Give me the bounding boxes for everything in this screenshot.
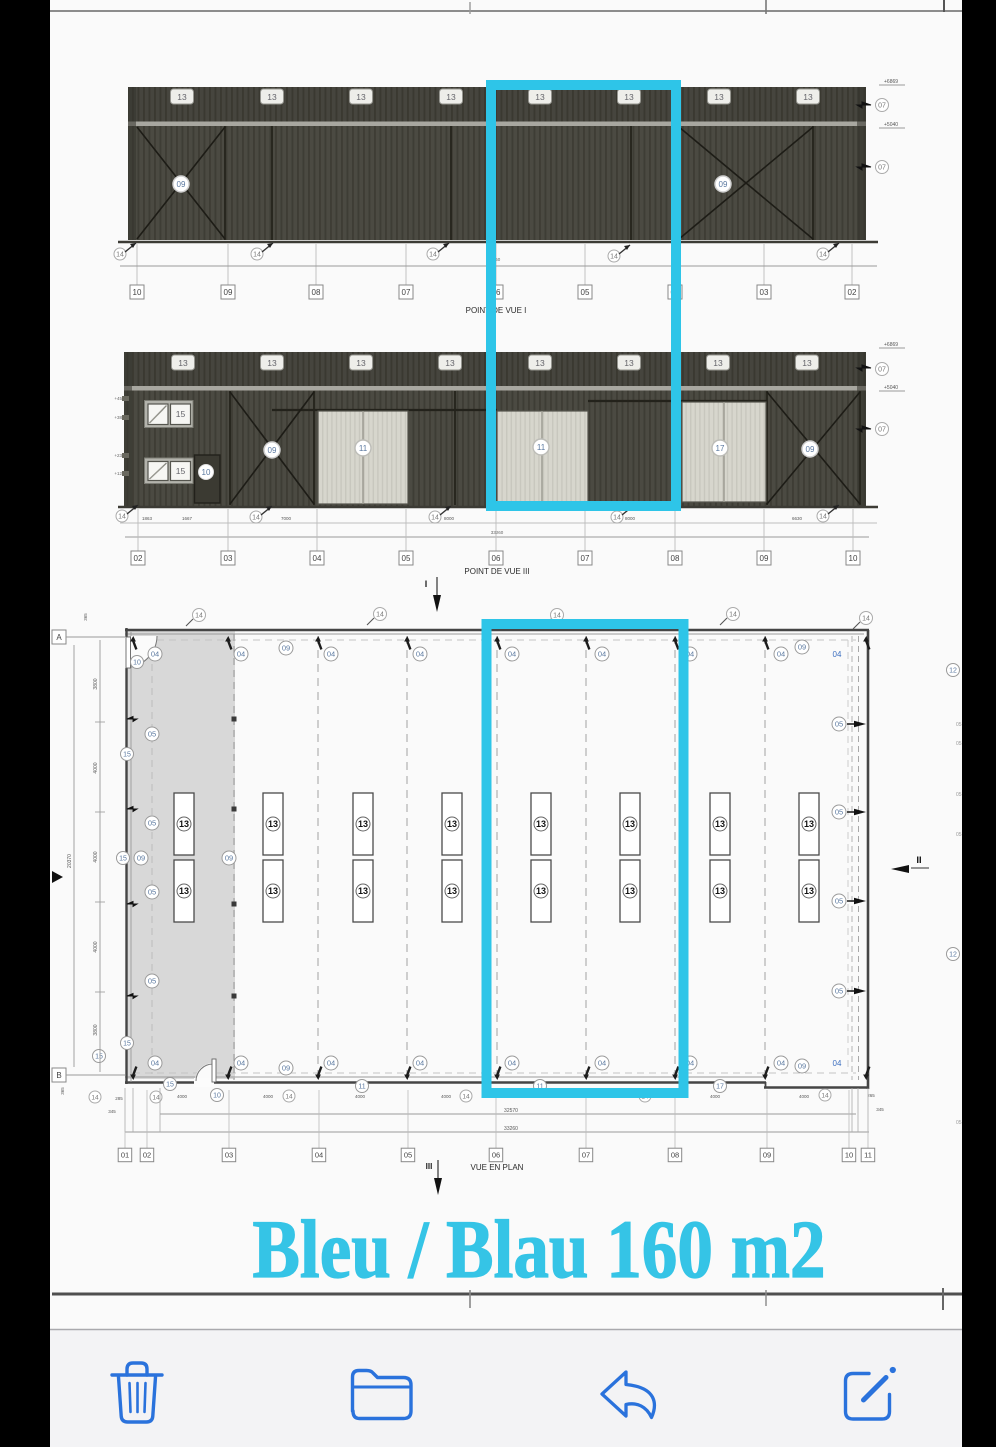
svg-text:04: 04 (833, 1059, 842, 1068)
svg-text:04: 04 (777, 650, 785, 659)
svg-text:14: 14 (821, 1092, 829, 1099)
svg-text:13: 13 (445, 358, 455, 368)
svg-text:09: 09 (177, 180, 186, 189)
svg-text:14: 14 (195, 613, 203, 620)
svg-text:14: 14 (819, 252, 827, 259)
svg-text:+12: +12 (114, 471, 122, 476)
svg-text:07: 07 (878, 427, 886, 434)
svg-text:15: 15 (123, 752, 131, 759)
svg-text:07: 07 (878, 367, 886, 374)
svg-text:365: 365 (83, 613, 88, 621)
svg-text:05: 05 (956, 832, 962, 838)
svg-text:4000: 4000 (710, 1094, 721, 1099)
svg-text:09: 09 (760, 554, 769, 563)
svg-text:4000: 4000 (355, 1094, 366, 1099)
svg-text:12: 12 (949, 952, 957, 959)
svg-text:+45: +45 (114, 396, 122, 401)
svg-text:14: 14 (729, 612, 737, 619)
svg-text:11: 11 (358, 1084, 365, 1091)
svg-text:VUE EN PLAN: VUE EN PLAN (471, 1163, 524, 1172)
svg-text:14: 14 (553, 613, 561, 620)
svg-text:13: 13 (358, 886, 368, 896)
svg-text:11: 11 (359, 444, 368, 453)
svg-text:14: 14 (613, 515, 621, 522)
svg-text:13: 13 (179, 886, 189, 896)
svg-text:01: 01 (121, 1151, 129, 1160)
svg-text:09: 09 (137, 854, 145, 863)
svg-text:Bleu / Blau 160 m2: Bleu / Blau 160 m2 (253, 1203, 826, 1295)
svg-text:04: 04 (598, 1059, 606, 1068)
svg-text:04: 04 (327, 650, 335, 659)
svg-text:13: 13 (713, 358, 723, 368)
svg-text:08: 08 (671, 1151, 679, 1160)
svg-text:13: 13 (535, 358, 545, 368)
svg-text:13: 13 (535, 92, 545, 102)
svg-text:14: 14 (91, 1094, 99, 1101)
svg-text:13: 13 (177, 92, 187, 102)
svg-text:05: 05 (835, 987, 843, 996)
svg-text:13: 13 (802, 358, 812, 368)
svg-text:05: 05 (956, 722, 962, 728)
svg-text:3800: 3800 (93, 678, 99, 689)
svg-text:4000: 4000 (799, 1094, 810, 1099)
svg-text:345: 345 (876, 1107, 884, 1112)
svg-text:13: 13 (536, 819, 546, 829)
svg-text:04: 04 (416, 650, 424, 659)
svg-text:09: 09 (282, 1064, 290, 1073)
svg-text:14: 14 (376, 612, 384, 619)
svg-text:14: 14 (118, 514, 126, 521)
svg-text:02: 02 (848, 288, 857, 297)
svg-text:II: II (916, 855, 921, 865)
svg-text:09: 09 (798, 1062, 806, 1071)
svg-text:7000: 7000 (281, 516, 292, 521)
svg-text:14: 14 (462, 1093, 470, 1100)
svg-text:14: 14 (610, 254, 618, 261)
svg-text:10: 10 (845, 1151, 853, 1160)
svg-text:+6869: +6869 (884, 342, 898, 348)
svg-text:04: 04 (327, 1059, 335, 1068)
svg-text:4000: 4000 (263, 1094, 274, 1099)
svg-text:4000: 4000 (177, 1094, 188, 1099)
svg-text:05: 05 (148, 977, 156, 986)
svg-text:14: 14 (252, 515, 260, 522)
svg-text:11: 11 (537, 443, 546, 452)
svg-text:15: 15 (166, 1082, 174, 1089)
svg-text:14: 14 (862, 616, 870, 623)
svg-text:05: 05 (148, 819, 156, 828)
svg-text:04: 04 (833, 650, 842, 659)
svg-text:1667: 1667 (182, 516, 193, 521)
svg-text:13: 13 (267, 92, 277, 102)
svg-text:285: 285 (115, 1096, 123, 1101)
svg-text:06: 06 (492, 1151, 500, 1160)
svg-text:+5040: +5040 (884, 385, 898, 391)
svg-text:03: 03 (224, 554, 233, 563)
svg-text:09: 09 (719, 180, 728, 189)
svg-text:3800: 3800 (93, 1024, 99, 1035)
svg-text:13: 13 (446, 92, 456, 102)
svg-text:03: 03 (225, 1151, 233, 1160)
svg-text:8000: 8000 (625, 516, 636, 521)
svg-text:04: 04 (313, 554, 322, 563)
svg-text:07: 07 (402, 288, 411, 297)
svg-text:09: 09 (806, 445, 815, 454)
svg-text:09: 09 (798, 643, 806, 652)
svg-text:05: 05 (956, 741, 962, 747)
svg-text:8000: 8000 (444, 516, 455, 521)
svg-text:13: 13 (268, 819, 278, 829)
svg-text:13: 13 (804, 819, 814, 829)
svg-text:05: 05 (404, 1151, 412, 1160)
svg-text:04: 04 (416, 1059, 424, 1068)
svg-text:13: 13 (179, 819, 189, 829)
svg-text:05: 05 (148, 888, 156, 897)
svg-text:06: 06 (492, 554, 501, 563)
svg-text:4000: 4000 (93, 762, 99, 773)
svg-text:11: 11 (864, 1151, 872, 1160)
svg-text:14: 14 (429, 252, 437, 259)
svg-text:15: 15 (119, 856, 127, 863)
svg-text:09: 09 (763, 1151, 771, 1160)
svg-text:09: 09 (224, 288, 233, 297)
svg-text:14: 14 (253, 252, 261, 259)
svg-text:6630: 6630 (792, 516, 803, 521)
svg-text:10: 10 (202, 468, 211, 477)
svg-text:05: 05 (956, 1120, 962, 1126)
svg-text:13: 13 (715, 886, 725, 896)
svg-text:365: 365 (60, 1087, 65, 1095)
svg-text:13: 13 (267, 358, 277, 368)
svg-text:04: 04 (508, 650, 516, 659)
svg-text:33260: 33260 (504, 1126, 518, 1132)
svg-text:4000: 4000 (93, 851, 99, 862)
svg-text:13: 13 (178, 358, 188, 368)
svg-text:15: 15 (123, 1041, 131, 1048)
svg-text:15: 15 (176, 409, 186, 419)
svg-text:15: 15 (176, 466, 186, 476)
svg-text:07: 07 (582, 1151, 590, 1160)
svg-text:15: 15 (95, 1054, 103, 1061)
svg-text:05: 05 (402, 554, 411, 563)
svg-text:B: B (56, 1071, 61, 1080)
svg-text:A: A (56, 633, 62, 642)
svg-text:+6869: +6869 (884, 79, 898, 85)
svg-text:05: 05 (148, 730, 156, 739)
svg-text:4000: 4000 (441, 1094, 452, 1099)
svg-text:13: 13 (447, 886, 457, 896)
svg-text:04: 04 (237, 650, 245, 659)
svg-text:13: 13 (356, 92, 366, 102)
svg-text:07: 07 (581, 554, 590, 563)
svg-text:13: 13 (358, 819, 368, 829)
svg-text:08: 08 (671, 554, 680, 563)
svg-text:13: 13 (624, 92, 634, 102)
svg-text:+5040: +5040 (884, 122, 898, 128)
svg-text:02: 02 (134, 554, 143, 563)
svg-text:14: 14 (116, 252, 124, 259)
svg-text:+23: +23 (114, 453, 122, 458)
svg-text:05: 05 (835, 720, 843, 729)
svg-text:13: 13 (447, 819, 457, 829)
svg-text:04: 04 (237, 1059, 245, 1068)
svg-text:09: 09 (282, 644, 290, 653)
svg-text:POINT DE VUE III: POINT DE VUE III (464, 567, 529, 576)
svg-text:1863: 1863 (142, 516, 153, 521)
svg-text:13: 13 (804, 886, 814, 896)
svg-text:32570: 32570 (504, 1108, 518, 1114)
svg-text:13: 13 (715, 819, 725, 829)
svg-text:14: 14 (819, 514, 827, 521)
svg-text:08: 08 (312, 288, 321, 297)
svg-text:12: 12 (949, 668, 957, 675)
svg-text:13: 13 (714, 92, 724, 102)
svg-text:+38: +38 (114, 415, 122, 420)
svg-text:04: 04 (151, 1059, 159, 1068)
svg-text:13: 13 (803, 92, 813, 102)
svg-text:05: 05 (835, 808, 843, 817)
svg-text:10: 10 (133, 660, 141, 667)
svg-text:13: 13 (356, 358, 366, 368)
svg-text:4000: 4000 (93, 941, 99, 952)
svg-text:33260: 33260 (491, 530, 504, 535)
svg-text:14: 14 (152, 1094, 160, 1101)
svg-text:05: 05 (835, 897, 843, 906)
svg-text:17: 17 (716, 1084, 724, 1091)
svg-text:07: 07 (878, 103, 886, 110)
svg-text:I: I (425, 579, 428, 589)
svg-text:14: 14 (431, 515, 439, 522)
svg-text:13: 13 (625, 886, 635, 896)
svg-text:05: 05 (581, 288, 590, 297)
svg-text:09: 09 (268, 446, 277, 455)
svg-text:05: 05 (956, 792, 962, 798)
svg-text:10: 10 (849, 554, 858, 563)
svg-text:02: 02 (143, 1151, 151, 1160)
svg-text:04: 04 (777, 1059, 785, 1068)
svg-text:13: 13 (536, 886, 546, 896)
svg-text:04: 04 (315, 1151, 323, 1160)
svg-text:III: III (426, 1162, 433, 1171)
svg-text:13: 13 (624, 358, 634, 368)
svg-text:04: 04 (151, 650, 159, 659)
svg-text:03: 03 (760, 288, 769, 297)
svg-text:04: 04 (598, 650, 606, 659)
svg-text:07: 07 (878, 165, 886, 172)
svg-text:13: 13 (268, 886, 278, 896)
svg-text:13: 13 (625, 819, 635, 829)
svg-text:17: 17 (716, 444, 725, 453)
svg-text:10: 10 (133, 288, 142, 297)
svg-text:10: 10 (213, 1093, 221, 1100)
svg-text:265: 265 (867, 1093, 875, 1098)
svg-text:20370: 20370 (67, 854, 73, 868)
svg-text:04: 04 (508, 1059, 516, 1068)
svg-text:14: 14 (285, 1093, 293, 1100)
svg-text:345: 345 (108, 1109, 116, 1114)
svg-text:09: 09 (225, 854, 233, 863)
